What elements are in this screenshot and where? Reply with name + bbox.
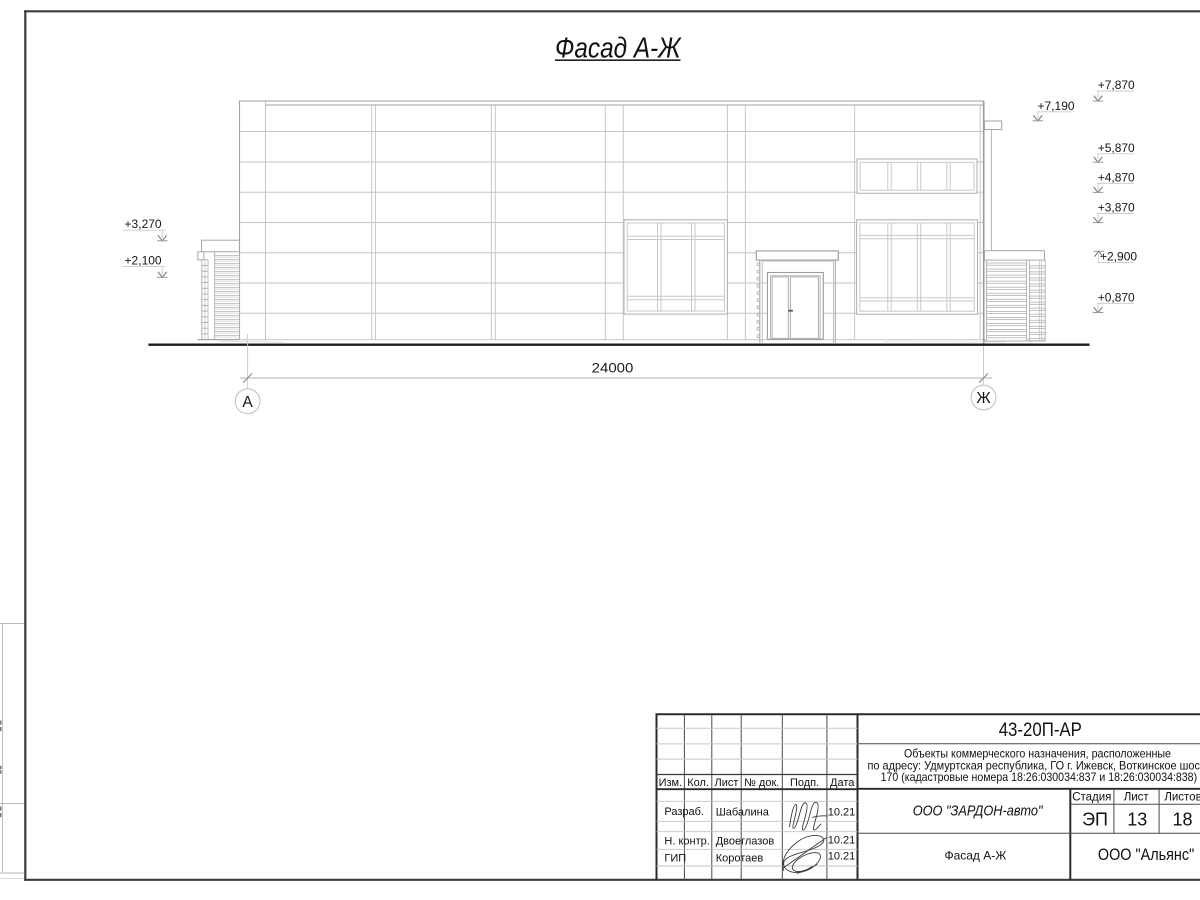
- svg-text:ООО "Альянс": ООО "Альянс": [1098, 845, 1194, 864]
- svg-text:Разраб.: Разраб.: [664, 806, 704, 818]
- svg-text:+2,100: +2,100: [125, 253, 162, 267]
- svg-text:Ж: Ж: [976, 390, 991, 407]
- svg-text:18: 18: [1172, 810, 1192, 830]
- svg-text:Изм.: Изм.: [659, 777, 683, 789]
- svg-text:Лист: Лист: [715, 777, 739, 789]
- svg-text:Листов: Листов: [1164, 791, 1200, 803]
- svg-text:Кол.: Кол.: [687, 777, 709, 789]
- svg-text:+3,270: +3,270: [125, 217, 162, 231]
- svg-text:10.21: 10.21: [828, 806, 856, 818]
- svg-text:24000: 24000: [592, 359, 634, 375]
- svg-text:10.21: 10.21: [828, 835, 856, 847]
- svg-text:Коротаев: Коротаев: [716, 852, 764, 864]
- svg-text:Фасад А-Ж: Фасад А-Ж: [944, 849, 1006, 863]
- svg-text:43-20П-АР: 43-20П-АР: [999, 720, 1082, 741]
- svg-text:170 (кадастровые номера 18:26:: 170 (кадастровые номера 18:26:030034:837…: [881, 770, 1198, 784]
- svg-text:+3,870: +3,870: [1098, 201, 1135, 215]
- svg-text:ООО "ЗАРДОН-авто": ООО "ЗАРДОН-авто": [913, 803, 1044, 819]
- svg-text:Шабалина: Шабалина: [716, 807, 770, 819]
- svg-text:ГИП: ГИП: [664, 852, 686, 864]
- svg-text:+7,190: +7,190: [1038, 99, 1075, 113]
- svg-text:+2,900: +2,900: [1100, 249, 1137, 263]
- svg-text:Дата: Дата: [830, 777, 855, 789]
- svg-text:А: А: [242, 394, 253, 411]
- svg-text:+4,870: +4,870: [1098, 171, 1135, 185]
- svg-text:10.21: 10.21: [828, 851, 856, 863]
- svg-text:+7,870: +7,870: [1098, 78, 1135, 92]
- svg-text:Стадия: Стадия: [1072, 791, 1111, 803]
- svg-text:ЭП: ЭП: [1082, 810, 1108, 830]
- svg-text:+5,870: +5,870: [1098, 141, 1135, 155]
- svg-text:+0,870: +0,870: [1098, 291, 1135, 305]
- svg-text:Н. контр.: Н. контр.: [664, 835, 709, 847]
- svg-text:№ док.: № док.: [744, 777, 779, 789]
- svg-text:Лист: Лист: [1124, 791, 1150, 803]
- svg-text:Двоеглазов: Двоеглазов: [716, 835, 775, 847]
- svg-text:Подп.: Подп.: [790, 777, 819, 789]
- svg-text:13: 13: [1127, 810, 1147, 830]
